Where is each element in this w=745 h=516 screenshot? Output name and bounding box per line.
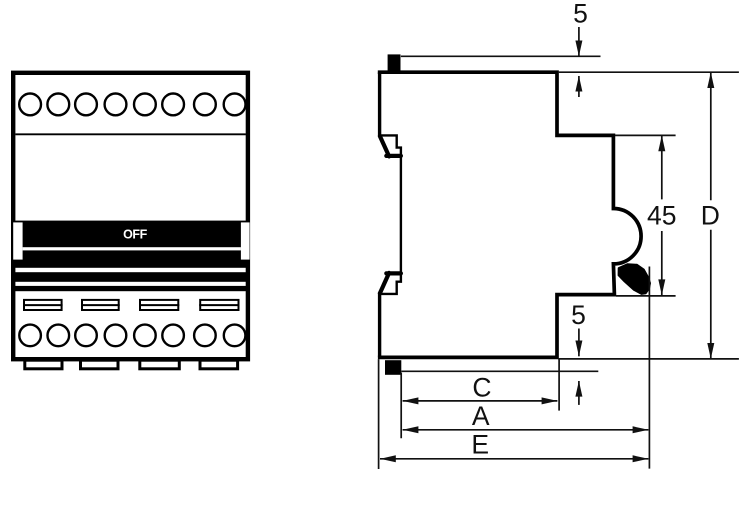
svg-text:OFF: OFF <box>123 227 148 241</box>
svg-text:E: E <box>471 429 489 459</box>
svg-text:D: D <box>701 201 720 231</box>
svg-text:A: A <box>472 401 490 431</box>
svg-text:5: 5 <box>573 0 588 29</box>
svg-text:45: 45 <box>647 201 676 231</box>
svg-text:C: C <box>472 373 491 403</box>
svg-text:5: 5 <box>571 300 586 330</box>
